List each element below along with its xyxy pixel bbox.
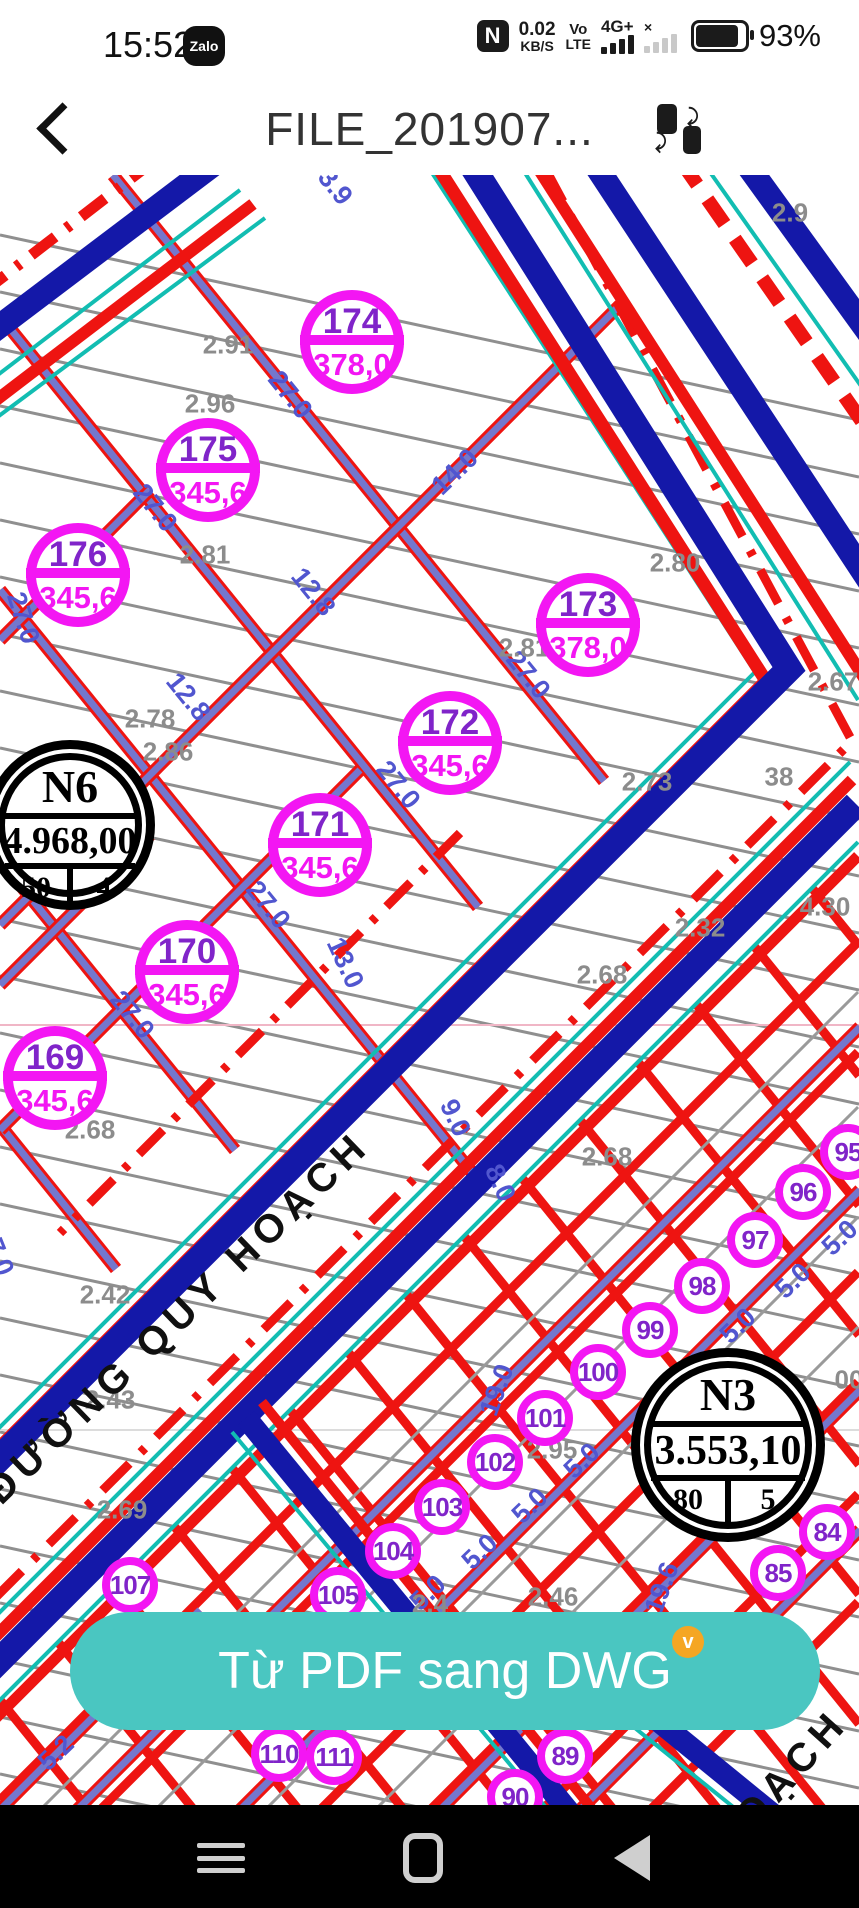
dimension-label: 2.81: [180, 540, 231, 571]
divider: [536, 618, 640, 628]
dimension-label: 5.0: [506, 1482, 555, 1530]
lot-badge: 96: [775, 1164, 831, 1220]
nfc-icon: N: [477, 20, 509, 52]
parcel-badge: 171345,6: [268, 793, 372, 897]
block-badge: N64.968,00504: [0, 740, 155, 910]
dimension-label: 2.78: [125, 704, 176, 735]
parcel-badge: 169345,6: [3, 1026, 107, 1130]
lot-badge: 111: [306, 1729, 362, 1785]
dimension-label: 5.0: [816, 1214, 859, 1262]
lot-badge: 97: [727, 1212, 783, 1268]
block-area: 4.968,00: [5, 819, 135, 869]
divider: [3, 1071, 107, 1081]
lot-badge: 95: [820, 1124, 859, 1180]
dimension-label: 2.67: [808, 667, 859, 698]
road-name-label: ĐƯỜNG QUY HOẠCH: [0, 1123, 379, 1514]
dimension-label: 19.0: [473, 1360, 520, 1420]
menu-icon[interactable]: [197, 1843, 245, 1873]
lot-badge: 85: [750, 1545, 806, 1601]
dimension-label: 2.9: [772, 198, 808, 229]
parcel-area: 378,0: [549, 630, 627, 666]
dimension-label: 5.0: [769, 1257, 818, 1305]
pdf-to-dwg-button[interactable]: Từ PDF sang DWG: [70, 1612, 820, 1730]
lot-badge: 89: [537, 1728, 593, 1784]
clock: 15:52: [103, 24, 193, 66]
nav-back-icon[interactable]: [614, 1835, 650, 1881]
divider: [135, 965, 239, 975]
parcel-area: 378,0: [313, 347, 391, 383]
lot-badge: 103: [414, 1479, 470, 1535]
parcel-badge: 176345,6: [26, 523, 130, 627]
signal-sim1-icon: 4G+: [601, 18, 634, 54]
parcel-area: 345,6: [16, 1083, 94, 1119]
dimension-label: 13.0: [320, 933, 370, 994]
lot-badge: 102: [467, 1434, 523, 1490]
parcel-area: 345,6: [411, 748, 489, 784]
divider: [156, 463, 260, 473]
lot-badge: 107: [102, 1557, 158, 1613]
zalo-notification-icon: Zalo: [183, 26, 225, 66]
dimension-label: 14.0: [425, 443, 484, 502]
dimension-label: 2.69: [97, 1495, 148, 1526]
parcel-area: 345,6: [281, 850, 359, 886]
lot-badge: 98: [674, 1258, 730, 1314]
dimension-label: 2.86: [143, 737, 194, 768]
dimension-label: 00: [835, 1365, 859, 1396]
version-badge: v: [672, 1626, 704, 1658]
battery-icon: [691, 20, 749, 52]
block-left-value: 50: [5, 869, 73, 905]
dimension-label: 19.6: [638, 1558, 685, 1618]
parcel-area: 345,6: [169, 475, 247, 511]
dimension-label: 2.73: [622, 767, 673, 798]
dimension-label: 2.42: [80, 1280, 131, 1311]
page-title: FILE_201907...: [0, 102, 859, 156]
dimension-label: 2.96: [185, 389, 236, 420]
lot-badge: 99: [622, 1302, 678, 1358]
divider: [398, 736, 502, 746]
lot-badge: 104: [365, 1523, 421, 1579]
lot-badge: 84: [799, 1504, 855, 1560]
parcel-area: 345,6: [148, 977, 226, 1013]
rotate-screen-icon[interactable]: ⤸⤸: [655, 104, 701, 154]
lot-badge: 110: [251, 1726, 307, 1782]
block-name: N3: [651, 1368, 805, 1427]
status-bar: 15:52 Zalo N 0.02 KB/S Vo LTE 4G+ × 93%: [0, 0, 859, 88]
dimension-label: 12.8: [284, 562, 341, 622]
dimension-label: 2.91: [203, 330, 254, 361]
dimension-label: 9.0: [433, 1094, 477, 1141]
signal-sim2-icon: ×: [644, 20, 677, 53]
divider: [300, 335, 404, 345]
dimension-label: 4.30: [800, 892, 851, 923]
lot-badge: 100: [570, 1344, 626, 1400]
dimension-label: 2.32: [675, 913, 726, 944]
dimension-label: 2.46: [528, 1582, 579, 1613]
network-speed: 0.02 KB/S: [519, 20, 556, 53]
dimension-label: 2.80: [650, 548, 701, 579]
dimension-label: 27.0: [0, 1220, 20, 1280]
block-badge: N33.553,10805: [631, 1348, 825, 1542]
dimension-label: 2.68: [577, 960, 628, 991]
lot-badge: 101: [517, 1390, 573, 1446]
dimension-label: 8.0: [478, 1159, 522, 1206]
dimension-label: 5.0: [456, 1528, 505, 1576]
battery-percent: 93%: [759, 18, 821, 54]
block-area: 3.553,10: [651, 1427, 805, 1481]
parcel-area: 345,6: [39, 580, 117, 616]
parcel-badge: 175345,6: [156, 418, 260, 522]
parcel-badge: 174378,0: [300, 290, 404, 394]
divider: [268, 838, 372, 848]
android-nav-bar: [0, 1805, 859, 1908]
parcel-badge: 170345,6: [135, 920, 239, 1024]
dimension-label: 2.68: [582, 1142, 633, 1173]
home-icon[interactable]: [403, 1833, 443, 1883]
parcel-badge: 172345,6: [398, 691, 502, 795]
block-right-value: 5: [731, 1481, 805, 1522]
dimension-label: 5.0: [714, 1302, 763, 1350]
dimension-label: 5.2: [32, 1729, 81, 1777]
parcel-badge: 173378,0: [536, 573, 640, 677]
divider: [26, 568, 130, 578]
app-header: FILE_201907... ⤸⤸: [0, 88, 859, 175]
volte-icon: Vo LTE: [566, 22, 591, 51]
block-name: N6: [5, 760, 135, 819]
block-right-value: 4: [73, 869, 135, 905]
block-left-value: 80: [651, 1481, 731, 1522]
dimension-label: 38: [765, 762, 794, 793]
